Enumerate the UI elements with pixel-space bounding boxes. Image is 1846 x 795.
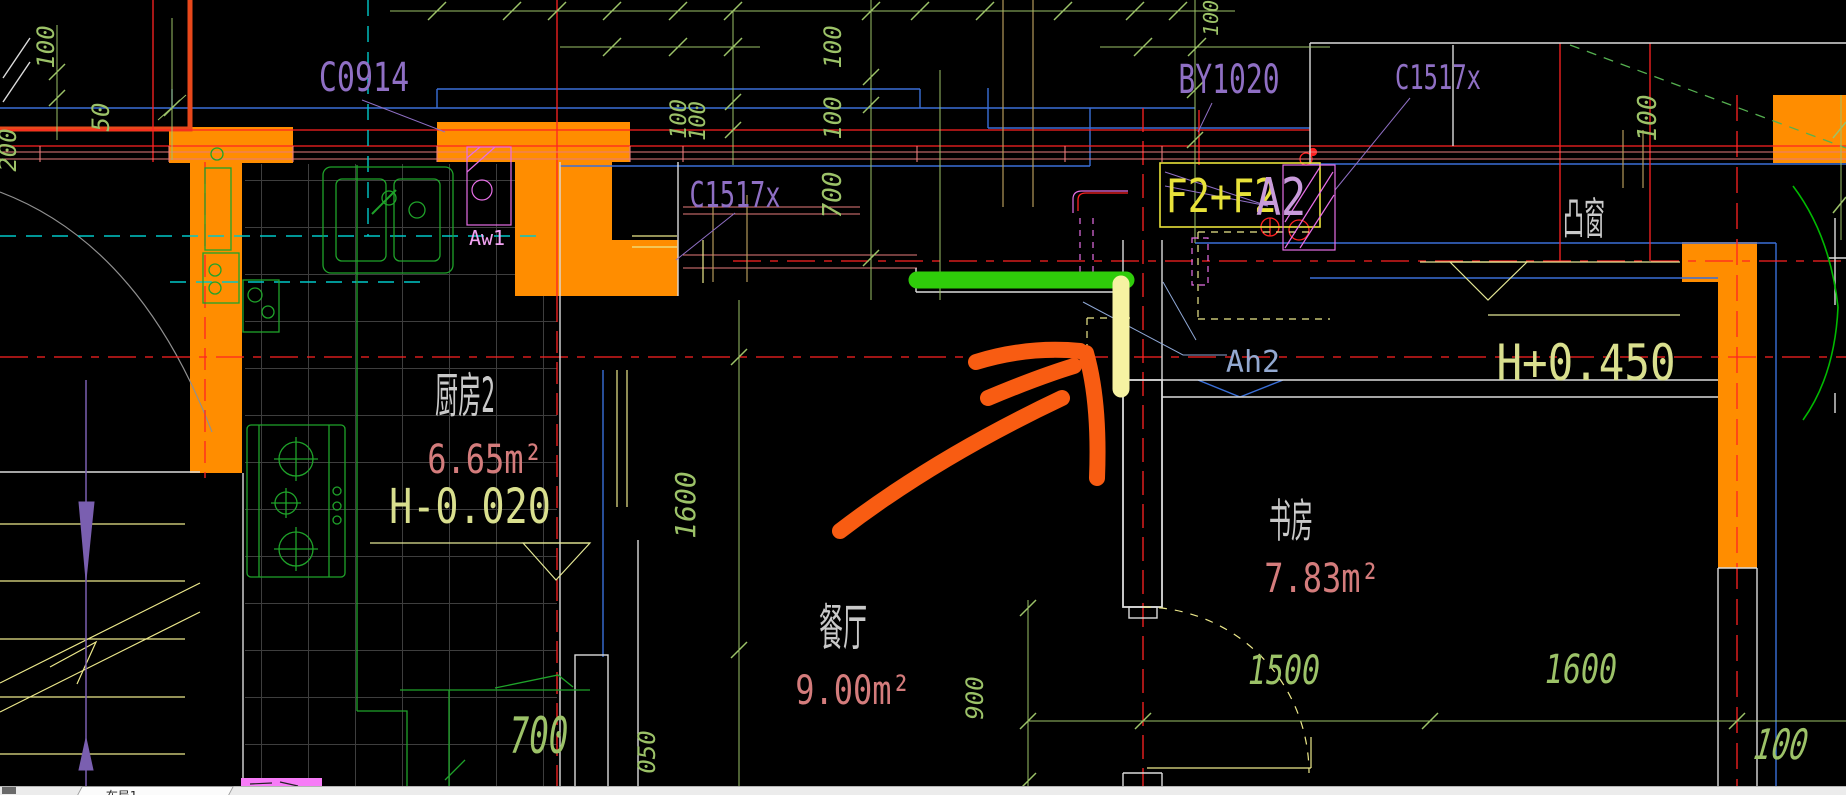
dim-label: 100 (821, 25, 845, 68)
dim-label: 700 (510, 711, 569, 761)
dim-label: 700 (820, 172, 846, 219)
gray-arc (0, 192, 212, 432)
highlight-annotations (840, 280, 1126, 531)
room-label-kitchen: 厨房2 (435, 372, 495, 420)
fixture-label-aw1: Aw1 (469, 228, 505, 248)
dim-label: 50 (89, 103, 113, 132)
dim-label: 1500 (1248, 651, 1320, 691)
dim-label: 1600 (672, 471, 700, 538)
room-level-bay-window: H+0.450 (1496, 338, 1675, 388)
orange-annotation-arrow (840, 350, 1098, 531)
layout-tab-bar (0, 786, 1846, 795)
model-space-icon[interactable] (2, 787, 16, 794)
window-label-by1020: BY1020 (1178, 60, 1279, 100)
dim-label: 1600 (1545, 650, 1617, 690)
dim-label: 100 (1635, 95, 1661, 142)
room-label-bay-window: 凸窗 (1563, 198, 1605, 242)
room-level-kitchen: H-0.020 (389, 483, 551, 531)
room-area-kitchen: 6.65m² (427, 440, 543, 480)
room-label-dining: 餐厅 (819, 603, 867, 653)
dim-label: 100 (1201, 0, 1221, 36)
dim-label: 900 (963, 676, 987, 719)
dim-label: 100 (1751, 724, 1810, 766)
layout-tab[interactable]: 布局1 (74, 786, 234, 795)
window-label-c1517-left: C1517x (689, 178, 780, 214)
room-label-study: 书房 (1269, 498, 1313, 544)
room-area-dining: 9.00m² (795, 671, 911, 711)
cad-drawing-canvas[interactable]: C0914 C1517x BY1020 C1517x F2+F2 A2 Aw1 … (0, 0, 1846, 795)
layout-tab-label: 布局1 (78, 787, 228, 795)
dim-label: 100 (821, 96, 845, 139)
window-label-c0914: C0914 (319, 58, 409, 98)
dim-label: 100 (34, 25, 58, 68)
room-area-study: 7.83m² (1264, 559, 1380, 599)
fixture-label-ah2: Ah2 (1226, 348, 1280, 378)
window-label-c1517-right: C1517x (1395, 61, 1481, 95)
dim-label: 050 (635, 730, 659, 773)
stair-direction-arrows (79, 380, 94, 795)
door-label-a2: A2 (1256, 172, 1306, 224)
dim-label: 200 (0, 128, 20, 171)
dim-label: 100 (688, 101, 710, 141)
